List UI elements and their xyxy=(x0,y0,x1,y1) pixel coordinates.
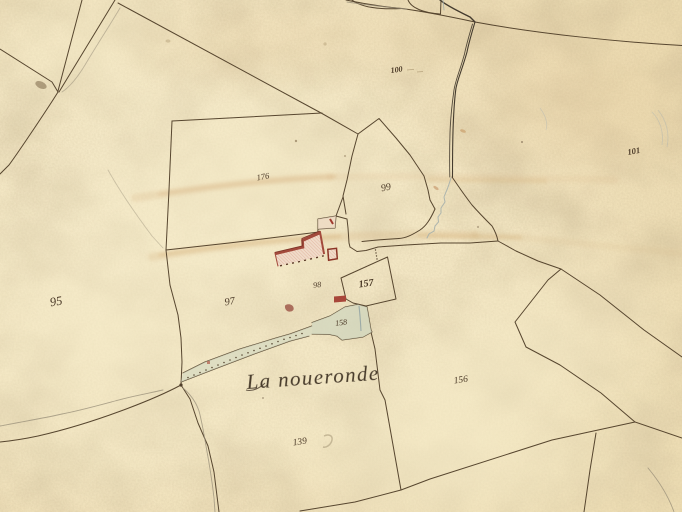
svg-text:100: 100 xyxy=(390,64,403,75)
svg-text:98: 98 xyxy=(313,280,322,290)
svg-text:95: 95 xyxy=(49,293,64,309)
svg-text:158: 158 xyxy=(335,317,348,328)
svg-text:139: 139 xyxy=(292,437,308,449)
svg-text:157: 157 xyxy=(358,277,375,290)
svg-text:156: 156 xyxy=(453,375,469,387)
